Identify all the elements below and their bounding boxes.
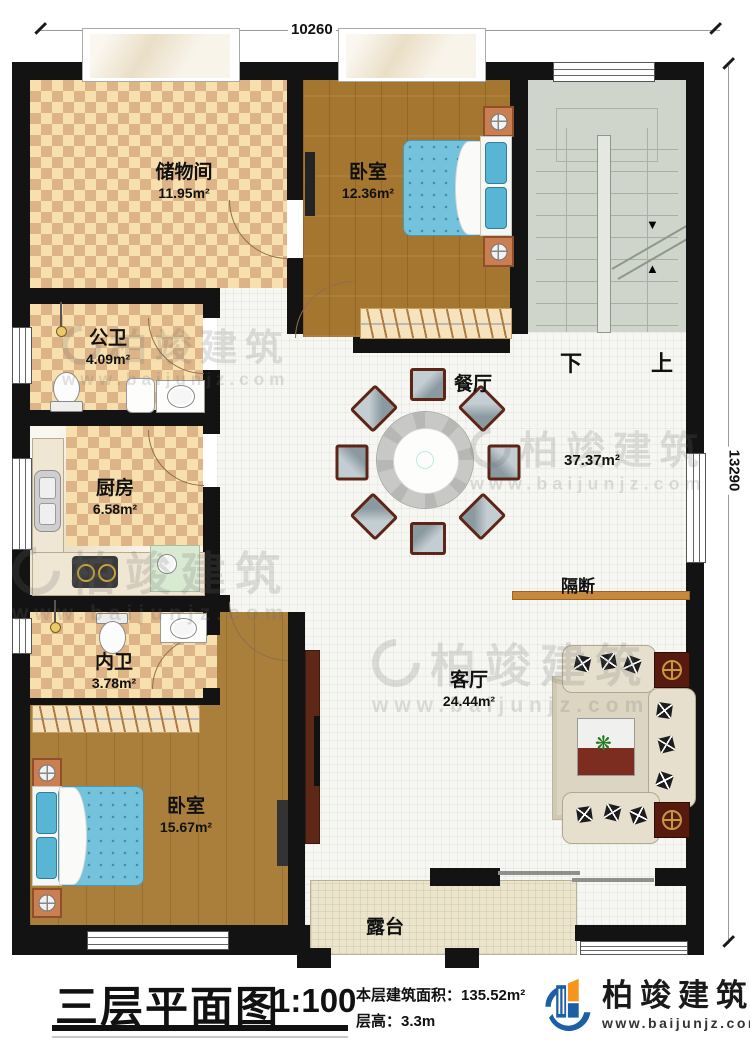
cushion: [600, 653, 617, 670]
bed-sheet: [455, 141, 483, 235]
sofa-right: [648, 688, 696, 808]
wall-bath-right: [203, 288, 220, 318]
coffee-table: ❋: [577, 718, 635, 776]
partition-label: 隔断: [561, 572, 595, 597]
cushion: [657, 735, 675, 753]
dining-chair: [488, 445, 521, 481]
pillow: [36, 792, 57, 834]
room-label-storage: 储物间11.95m²: [155, 162, 212, 202]
sink-bowl: [39, 477, 56, 499]
tv-bedroom-top: [305, 152, 315, 216]
compass-icon: [662, 810, 682, 830]
room-label-inner-bath: 内卫3.78m²: [92, 652, 136, 692]
plan-scale: 1:100: [272, 982, 356, 1020]
window-innerbath: [12, 618, 32, 654]
wall-living-terrace: [430, 868, 500, 886]
wall-stair-left: [510, 62, 528, 334]
window-kitchen: [12, 458, 32, 550]
cushion: [603, 803, 621, 821]
window-bath: [12, 327, 32, 384]
stair-arrow-up-icon: ▲: [646, 262, 659, 275]
wall-bottom-living: [575, 925, 704, 941]
tv-bedroom-bottom: [277, 800, 288, 866]
wall-kitchen-bottom: [12, 595, 230, 612]
burner-icon: [77, 564, 95, 582]
wall-bedroom-top-left: [287, 62, 303, 200]
title-underline: [52, 1025, 348, 1031]
wall-innerbath-right: [203, 688, 220, 705]
washing-machine: [126, 378, 155, 413]
terrace-floor: [310, 880, 577, 955]
dining-chair: [410, 522, 446, 555]
room-label-public-bath: 公卫4.09m²: [86, 328, 130, 368]
cushion: [629, 806, 648, 825]
sink: [170, 618, 197, 639]
dining-chair: [336, 445, 369, 481]
window-hall-right: [686, 453, 706, 563]
room-label-dining: 餐厅: [454, 374, 492, 397]
cushion: [576, 806, 593, 823]
terrace-slider: [572, 878, 654, 882]
bed-headboard: [480, 136, 512, 236]
wall-bedroom-bottom-right: [288, 612, 305, 955]
wall-storage-bottom: [12, 288, 217, 304]
window-stair: [553, 62, 655, 82]
brand-name: 柏竣建筑: [602, 980, 750, 1011]
title-underline-thin: [52, 1036, 348, 1038]
plant-icon: ❋: [595, 734, 612, 754]
brand-logo-icon: [540, 976, 594, 1034]
wall-bath-right: [203, 370, 220, 426]
stair-down-label: 下: [560, 346, 582, 378]
wall-living-terrace: [655, 868, 688, 886]
sink-bowl: [39, 503, 56, 525]
brand-logo: 柏竣建筑 www.baijunjz.com: [540, 976, 750, 1034]
tv-living: [314, 716, 320, 786]
cushion: [655, 771, 674, 790]
nightstand: [483, 106, 514, 137]
wall-kitchen-right: [203, 487, 220, 595]
right-dimension-line: [728, 66, 729, 944]
title-bar: 三层平面图 1:100 本层建筑面积：135.52m² 层高：3.3m 柏竣建筑…: [0, 968, 750, 1046]
kitchen-prep-area: [150, 545, 200, 592]
right-dimension-label: 13290: [725, 447, 742, 495]
brand-website: www.baijunjz.com: [602, 1015, 750, 1031]
lamp-icon: [490, 113, 507, 130]
pillow: [485, 142, 507, 184]
ceiling-lamp-icon: [60, 302, 62, 328]
window-bedroom-bottom: [87, 931, 229, 950]
nightstand: [32, 758, 62, 788]
stove: [72, 556, 118, 588]
pillow: [36, 837, 57, 879]
dimension-tick: [709, 22, 721, 34]
room-label-bedroom-bottom: 卧室15.67m²: [160, 796, 212, 836]
side-table: [654, 802, 690, 838]
dining-table-center: [416, 451, 434, 469]
top-dimension-label: 10260: [288, 21, 336, 38]
bed-sheet: [59, 787, 87, 885]
cushion: [656, 702, 673, 719]
compass-icon: [662, 660, 682, 680]
nightstand: [32, 888, 62, 918]
wall-kitchen-right: [203, 426, 220, 434]
kitchen-sink-unit: [34, 470, 61, 532]
partition-bar: [512, 591, 690, 600]
room-label-terrace: 露台: [366, 917, 404, 940]
sofa-top: [562, 645, 656, 693]
floor-height-text: 层高：3.3m: [356, 1010, 435, 1031]
terrace-slider: [498, 871, 580, 875]
floor-plan-page: 10260 13290 ▼ ▲: [0, 0, 750, 1046]
wall-bedroom-top-bottom: [353, 337, 510, 353]
bay-window-sill: [90, 34, 230, 78]
sink: [167, 385, 195, 408]
side-table: [654, 652, 690, 688]
window-living-bottom: [580, 941, 688, 955]
lamp-icon: [39, 765, 56, 782]
lamp-icon: [39, 895, 56, 912]
cushion: [623, 655, 642, 674]
toilet: [99, 621, 126, 654]
cushion: [574, 655, 592, 673]
nightstand: [483, 236, 514, 267]
burner-icon: [98, 564, 116, 582]
ceiling-lamp-icon: [54, 600, 56, 624]
pillow: [485, 187, 507, 229]
hall-area-label: 37.37m²: [564, 452, 620, 469]
stair-up-label: 上: [651, 346, 673, 378]
stair-railing: [597, 135, 611, 333]
sofa-bottom: [562, 792, 660, 844]
toilet-tank: [50, 401, 83, 412]
room-label-kitchen: 厨房6.58m²: [93, 478, 137, 518]
bay-window-bedroom: [338, 28, 486, 82]
sink: [157, 554, 177, 574]
stair-arrow-down-icon: ▼: [646, 218, 659, 231]
bay-window-sill: [346, 34, 476, 78]
wardrobe-bedroom-top: [360, 308, 512, 339]
wall-innerbath-bottom: [30, 698, 217, 705]
wardrobe-bedroom-bottom: [32, 705, 200, 733]
lamp-icon: [490, 243, 507, 260]
dining-chair: [410, 368, 446, 401]
floor-area-text: 本层建筑面积：135.52m²: [356, 984, 525, 1005]
bay-window-storage: [82, 28, 240, 82]
dimension-tick: [34, 22, 46, 34]
room-label-bedroom-top: 卧室12.36m²: [342, 162, 394, 202]
room-label-living: 客厅24.44m²: [443, 670, 495, 710]
